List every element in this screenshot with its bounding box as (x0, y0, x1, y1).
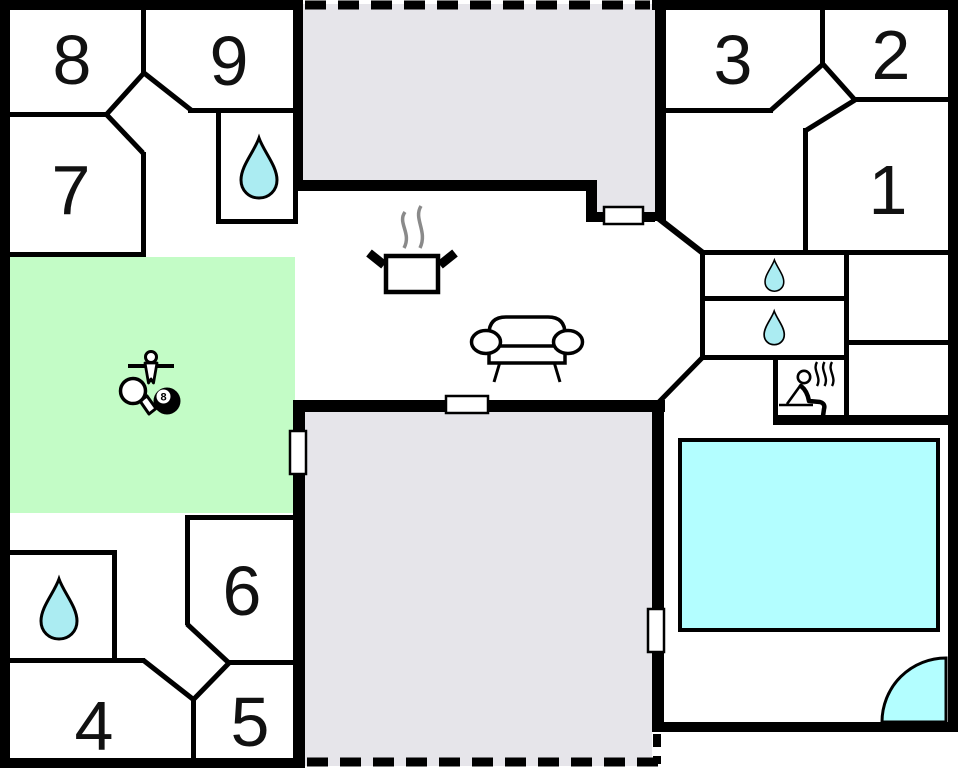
wall (8, 550, 117, 555)
wall (216, 108, 221, 224)
door-opening (648, 609, 664, 652)
wall (948, 0, 958, 732)
entrance-door-arc (882, 658, 946, 722)
game-room-floor (10, 257, 295, 513)
door-opening (290, 431, 306, 474)
door-opening (604, 207, 643, 224)
steam-icon (403, 206, 423, 248)
steam-line (403, 212, 407, 248)
wall (700, 296, 848, 301)
floor-plan-canvas: 8 1 2 3 4 5 6 7 8 9 (0, 0, 960, 771)
wall (141, 152, 146, 257)
wall (293, 191, 298, 224)
wall (851, 97, 948, 102)
wall (657, 358, 702, 404)
eight-ball-number: 8 (160, 392, 166, 404)
wall (226, 660, 295, 665)
water-drop-icon (765, 260, 784, 291)
wall (188, 108, 298, 113)
wall (106, 74, 143, 115)
wall (822, 63, 855, 100)
floor-plan: 8 1 2 3 4 5 6 7 8 9 (0, 0, 960, 771)
wall (844, 250, 849, 422)
sauna-person-icon (779, 362, 833, 416)
sauna-steam (816, 362, 834, 386)
kitchen-icons (369, 206, 455, 292)
stove-pot-icon (369, 253, 455, 292)
room-number-6: 6 (223, 552, 262, 630)
wall (652, 0, 958, 10)
wall (297, 180, 597, 191)
room-number-8: 8 (53, 21, 92, 99)
wall (185, 515, 295, 520)
wall (143, 660, 194, 700)
wall (700, 250, 705, 360)
steam-line (419, 206, 423, 248)
wall (141, 10, 146, 74)
wall (844, 340, 948, 345)
room-number-9: 9 (210, 22, 249, 100)
terrace-bottom-floor (305, 410, 652, 766)
wall (144, 73, 191, 110)
room-number-3: 3 (714, 21, 753, 99)
room-number-1: 1 (869, 151, 908, 229)
room-number-5: 5 (231, 683, 270, 761)
room-number-7: 7 (52, 151, 91, 229)
billiards-eight-ball-icon: 8 (154, 388, 181, 415)
wall (663, 108, 773, 113)
wall (773, 415, 958, 425)
wall (700, 250, 948, 255)
wall (193, 663, 229, 700)
wall (770, 64, 823, 111)
wall (820, 10, 825, 65)
pool-area (680, 440, 946, 722)
water-drop-icon (764, 311, 784, 345)
wall (0, 0, 10, 768)
wall (658, 218, 703, 253)
wall (10, 112, 108, 117)
water-drop-icon (241, 138, 277, 198)
water-drop-icon (41, 579, 77, 639)
wall (112, 550, 117, 663)
wall (8, 0, 303, 10)
wall (191, 698, 196, 766)
wall (652, 403, 664, 727)
wall (805, 100, 855, 131)
wall (185, 515, 190, 625)
door-opening (446, 396, 488, 413)
wall (216, 219, 298, 224)
wall (106, 114, 143, 153)
room-number-4: 4 (75, 687, 114, 765)
wall (8, 658, 145, 663)
wall (773, 355, 778, 422)
sofa-icon (472, 317, 583, 382)
wall (10, 252, 143, 257)
wall (293, 0, 303, 191)
swimming-pool (680, 440, 938, 630)
wall (652, 722, 958, 732)
room-number-2: 2 (872, 16, 911, 94)
wall (803, 128, 808, 255)
